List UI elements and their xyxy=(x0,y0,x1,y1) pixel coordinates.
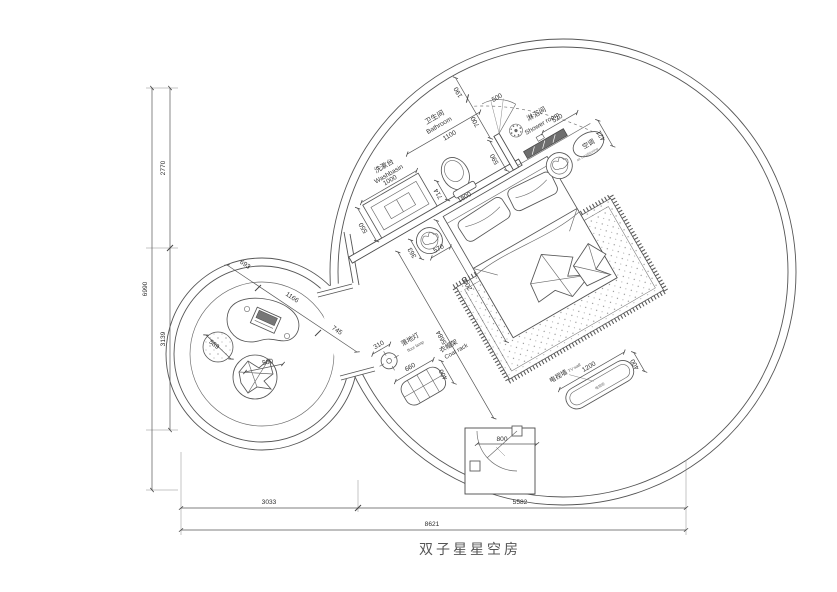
dim-side-table-a: 363 xyxy=(407,246,419,259)
dim-left-top: 2770 xyxy=(160,160,167,175)
dim-bath-door-leaf: 500 xyxy=(491,92,504,104)
dim-left-bottom: 3139 xyxy=(160,331,167,346)
dim-bottom-total: 8621 xyxy=(425,521,440,528)
dim-bottom-left: 3033 xyxy=(262,499,277,506)
dim-bathroom-width: 1100 xyxy=(442,129,458,142)
dim-entry-door: 800 xyxy=(496,436,507,443)
dim-tv-length: 1200 xyxy=(581,360,597,374)
floor-lamp xyxy=(374,346,404,376)
dim-shower-wall: 590 xyxy=(489,152,501,165)
dim-left-total: 6990 xyxy=(142,281,149,296)
bedside-table-left xyxy=(412,223,448,259)
bathroom-door-swing xyxy=(482,89,524,133)
shower-head-icon xyxy=(507,122,525,140)
dim-toilet-clear: 714 xyxy=(433,187,445,200)
tv-wall-label-cn: 电视墙 xyxy=(547,367,569,385)
dim-bath-offset: 190 xyxy=(453,85,465,98)
dim-bottom-right: 5582 xyxy=(513,499,528,506)
drawing-title: 双子星星空房 xyxy=(419,542,521,558)
star-room-interior: 空调 air conditioning xyxy=(274,27,719,485)
floor-plan-page: 空调 air conditioning xyxy=(0,0,837,592)
left-dimension-chain: 6990 2770 3139 xyxy=(142,88,178,490)
dim-coat-rack-length: 660 xyxy=(404,362,417,374)
dim-lounge-b: 1166 xyxy=(284,291,300,305)
entrance: 800 xyxy=(465,426,537,494)
dim-lamp-dia: 310 xyxy=(372,339,385,351)
bottom-dimension-chain: 3033 5582 8621 xyxy=(181,452,686,535)
floor-plan-canvas: 空调 air conditioning xyxy=(0,0,837,592)
dim-washbasin-depth: 550 xyxy=(358,221,370,234)
tv-cabinet: 电视柜 xyxy=(555,345,637,413)
lounge-interior: 693 1166 745 589 500 xyxy=(203,259,357,399)
tv-wall-label-en: TV wall xyxy=(567,362,581,373)
door-post xyxy=(470,461,480,471)
